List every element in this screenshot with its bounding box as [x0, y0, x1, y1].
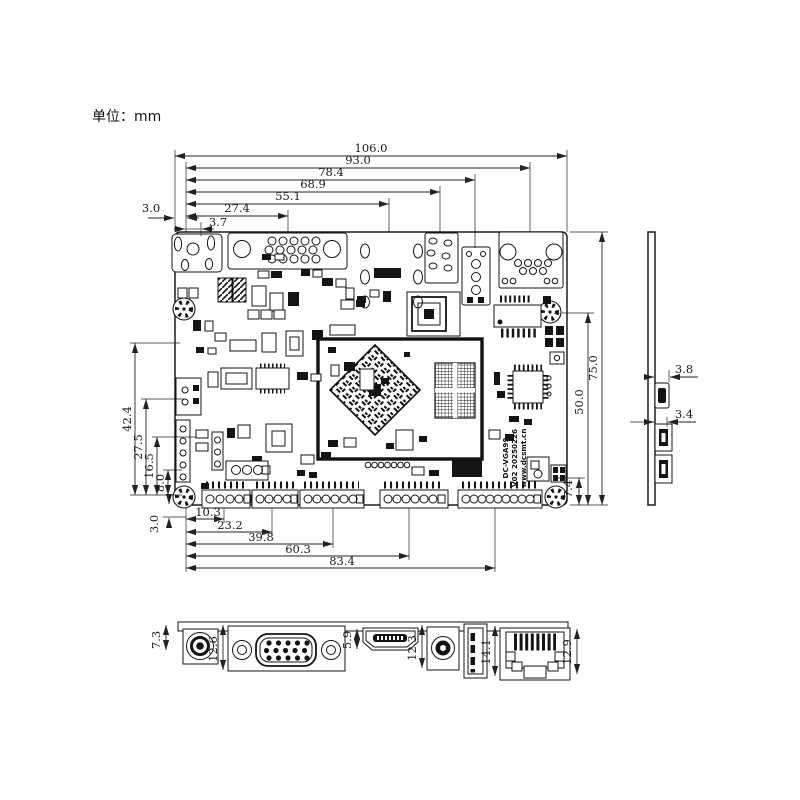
vga-front: [228, 626, 345, 671]
vga-footprint: [228, 233, 347, 269]
terminal-block-3: [300, 490, 364, 508]
dim-3-8: 3.8: [675, 362, 693, 376]
connector-front-view: 7.3 12.6 5.9 12.3 14.1 12.9: [149, 622, 577, 680]
dim-39-8: 39.8: [248, 530, 274, 544]
dim-75-0: 75.0: [586, 355, 600, 381]
dim-14-1: 14.1: [479, 639, 493, 665]
side-board-outline: [648, 232, 655, 505]
pcb-top-view: DC-VGA99 V02 20250226 www.dcsmt.cn: [172, 232, 567, 508]
rj45-footprint: [499, 232, 563, 288]
dim-83-4: 83.4: [329, 554, 355, 568]
dim-55-1: 55.1: [275, 189, 301, 203]
dim-42-4: 42.4: [120, 406, 134, 432]
dim-5-9: 5.9: [340, 631, 354, 649]
pad-grid-area: [435, 363, 475, 418]
dim-3-4: 3.4: [675, 407, 693, 421]
dim-60-3: 60.3: [285, 542, 311, 556]
usb-side-profile: [655, 424, 672, 483]
hdmi-side-profile: [655, 383, 669, 408]
dim-3-7: 3.7: [209, 215, 227, 229]
dim-8-0: 8.0: [153, 474, 167, 492]
dim-93: 93.0: [345, 153, 371, 167]
dim-3-0-top: 3.0: [142, 201, 160, 215]
dim-10-3: 10.3: [195, 505, 221, 519]
mount-hole-icon: [539, 301, 561, 323]
drawing-canvas: 单位：mm: [0, 0, 800, 800]
terminal-block-2: [252, 490, 298, 508]
dim-27-4: 27.4: [224, 201, 250, 215]
dim-12-3: 12.3: [405, 635, 419, 661]
dim-7-4: 7.4: [561, 480, 575, 498]
dim-3-0-bottom: 3.0: [147, 515, 161, 533]
audio-jack-footprint: [172, 234, 222, 272]
usb-footprint: [462, 247, 490, 305]
unit-label: 单位：mm: [92, 109, 161, 125]
dimensions-bottom: 10.3 23.2 39.8 60.3 83.4: [186, 505, 495, 572]
terminal-block-5: [458, 490, 542, 508]
dim-50-0: 50.0: [572, 389, 586, 415]
dim-7-3: 7.3: [149, 631, 163, 649]
dim-23-2: 23.2: [217, 518, 243, 532]
pcb-side-view: 3.8 3.4: [630, 232, 698, 505]
dim-68-9: 68.9: [300, 177, 326, 191]
pcb-dimension-drawing: 单位：mm: [0, 0, 800, 800]
terminal-block-4: [380, 490, 448, 508]
hdmi-footprint: [425, 233, 458, 283]
dim-12-6: 12.6: [206, 636, 220, 662]
shield-tab: [452, 458, 482, 477]
audio-jack-front: [427, 627, 459, 670]
silkscreen-model: DC-VGA99: [501, 438, 510, 479]
mount-hole-icon: [173, 298, 195, 320]
mount-hole-icon: [173, 486, 195, 508]
dim-12-9: 12.9: [560, 639, 574, 665]
